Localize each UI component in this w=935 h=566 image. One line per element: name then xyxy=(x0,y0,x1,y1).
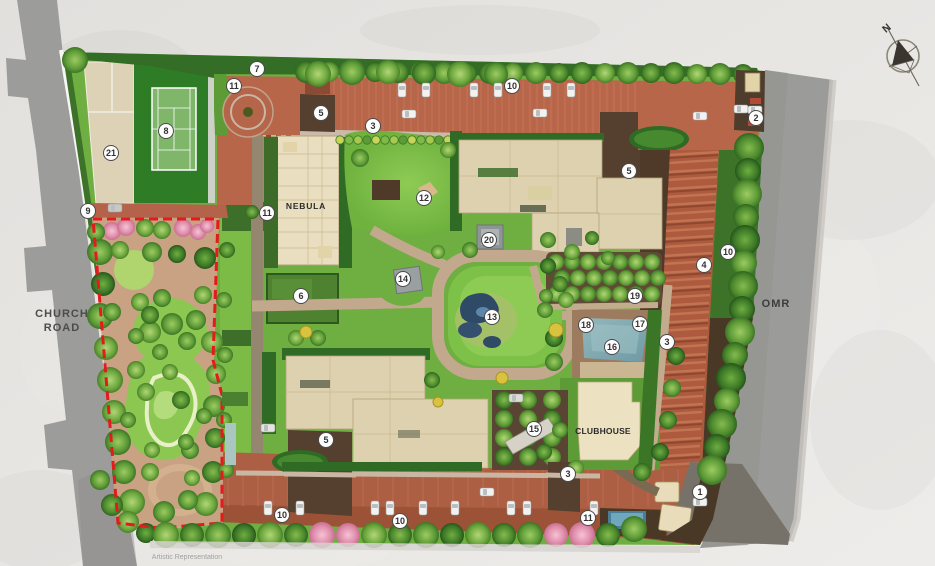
svg-text:ROAD: ROAD xyxy=(44,322,80,334)
svg-text:10: 10 xyxy=(395,516,405,526)
svg-text:20: 20 xyxy=(484,235,494,245)
svg-text:10: 10 xyxy=(507,81,517,91)
svg-text:10: 10 xyxy=(277,510,287,520)
svg-text:8: 8 xyxy=(163,126,168,136)
svg-text:11: 11 xyxy=(583,513,593,523)
svg-text:14: 14 xyxy=(398,274,408,284)
svg-text:12: 12 xyxy=(419,193,429,203)
svg-text:18: 18 xyxy=(581,320,591,330)
svg-text:17: 17 xyxy=(635,319,645,329)
svg-text:7: 7 xyxy=(254,64,259,74)
svg-text:11: 11 xyxy=(229,81,239,91)
svg-text:1: 1 xyxy=(697,487,702,497)
svg-text:6: 6 xyxy=(298,291,303,301)
svg-text:5: 5 xyxy=(323,435,328,445)
svg-text:13: 13 xyxy=(487,312,497,322)
svg-text:3: 3 xyxy=(565,469,570,479)
svg-text:CLUBHOUSE: CLUBHOUSE xyxy=(575,426,631,436)
svg-text:15: 15 xyxy=(529,424,539,434)
svg-text:10: 10 xyxy=(723,247,733,257)
svg-text:21: 21 xyxy=(106,148,116,158)
svg-text:16: 16 xyxy=(607,342,617,352)
svg-text:4: 4 xyxy=(701,260,706,270)
svg-text:3: 3 xyxy=(664,337,669,347)
svg-text:9: 9 xyxy=(85,206,90,216)
svg-text:CHURCH: CHURCH xyxy=(35,308,89,320)
svg-text:2: 2 xyxy=(753,113,758,123)
svg-text:3: 3 xyxy=(370,121,375,131)
svg-text:11: 11 xyxy=(262,208,272,218)
svg-text:Artistic Representation: Artistic Representation xyxy=(152,554,223,561)
svg-text:19: 19 xyxy=(630,291,640,301)
svg-text:5: 5 xyxy=(626,166,631,176)
svg-text:OMR: OMR xyxy=(762,298,791,310)
svg-text:5: 5 xyxy=(318,108,323,118)
svg-text:NEBULA: NEBULA xyxy=(286,201,326,211)
